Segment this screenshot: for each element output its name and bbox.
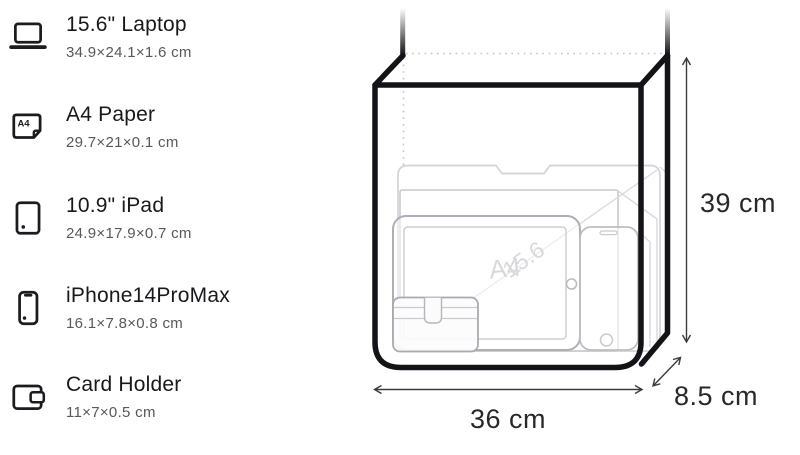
item-dimensions: 24.9×17.9×0.7 cm [66, 225, 192, 242]
height-dimension-label: 39 cm [700, 188, 776, 218]
tablet-icon [8, 196, 48, 240]
width-arrow [375, 386, 643, 394]
item-title: 10.9" iPad [66, 193, 192, 218]
bag-dimension-diagram: 15.6 A4 [360, 0, 800, 455]
bag-hidden-edges [404, 54, 665, 167]
item-title: A4 Paper [66, 102, 179, 127]
item-dimensions: 11×7×0.5 cm [66, 404, 181, 421]
a4-watermark: A4 [488, 251, 523, 284]
wallet-icon [8, 375, 48, 419]
list-item-a4-paper: A4 A4 Paper 29.7×21×0.1 cm [8, 102, 348, 151]
item-dimensions: 16.1×7.8×0.8 cm [66, 315, 230, 332]
a4-icon-label: A4 [17, 118, 30, 129]
laptop-icon [8, 15, 48, 59]
height-arrow [683, 58, 691, 342]
bag-contents: 15.6 A4 [393, 166, 669, 352]
item-title: Card Holder [66, 372, 181, 397]
item-dimensions: 34.9×24.1×1.6 cm [66, 44, 192, 61]
list-item-card-holder: Card Holder 11×7×0.5 cm [8, 372, 348, 421]
item-title: iPhone14ProMax [66, 283, 230, 308]
bag-back-panel-stubs [400, 8, 670, 55]
ipad-home-button [567, 279, 577, 289]
list-item-laptop: 15.6" Laptop 34.9×24.1×1.6 cm [8, 12, 348, 61]
item-title: 15.6" Laptop [66, 12, 192, 37]
card-holder-outline [393, 298, 478, 352]
card-holder-tab [425, 298, 442, 323]
list-item-ipad: 10.9" iPad 24.9×17.9×0.7 cm [8, 193, 348, 242]
phone-icon [8, 286, 48, 330]
size-comparison-panel: 15.6" Laptop 34.9×24.1×1.6 cm A4 A4 Pape… [0, 0, 800, 455]
width-dimension-label: 36 cm [470, 404, 546, 434]
depth-dimension-label: 8.5 cm [674, 381, 758, 411]
item-dimensions: 29.7×21×0.1 cm [66, 134, 179, 151]
iphone-outline [580, 227, 638, 350]
a4-paper-icon: A4 [8, 105, 48, 149]
list-item-iphone: iPhone14ProMax 16.1×7.8×0.8 cm [8, 283, 348, 332]
